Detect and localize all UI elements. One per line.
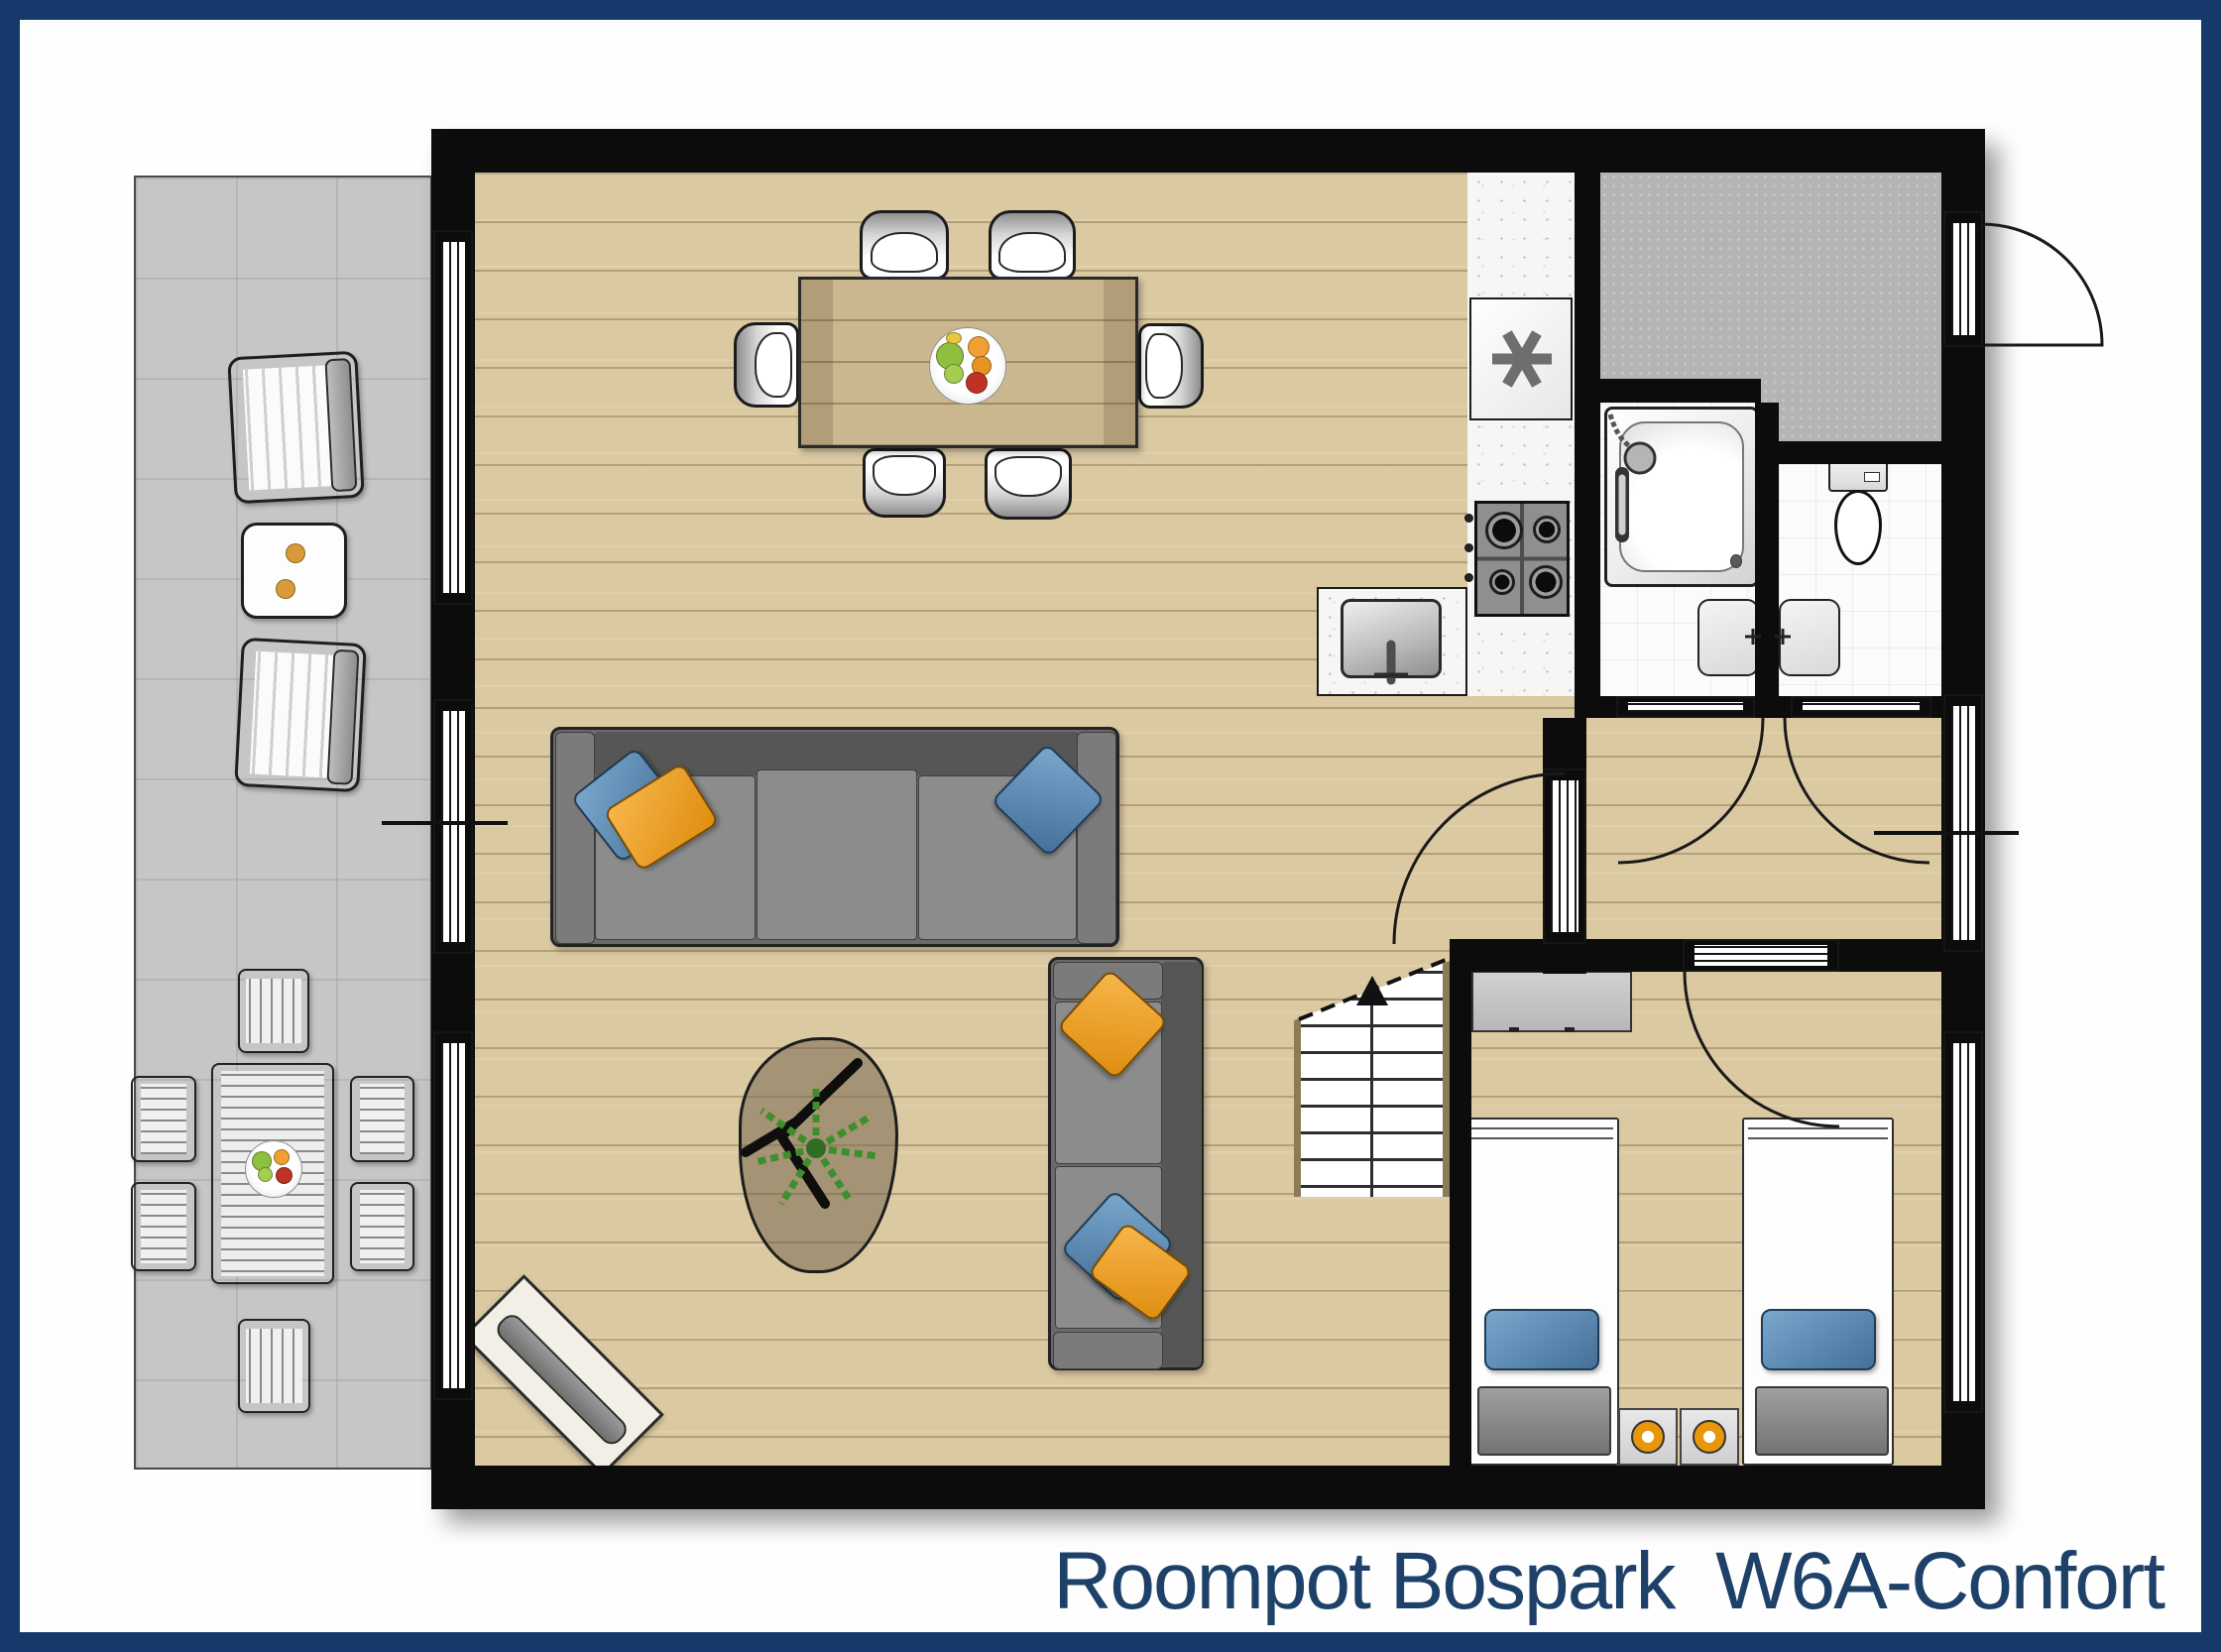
freezer-symbol [1492,333,1552,385]
shower-door-swing-arc [1618,718,1763,863]
shower-head [1625,443,1655,473]
living-hall-door-swing-arc [1394,773,1565,944]
front-door-swing-arc [1981,224,2102,345]
stairs-up-arrow [1356,976,1388,1005]
plant-center [806,1138,826,1158]
wc-door-swing-arc [1785,718,1929,863]
floorplan-page: Roompot Bospark W6A-Confort [0,0,2221,1652]
plan-caption: Roompot Bospark W6A-Confort [1053,1535,2163,1628]
bedroom-door-swing-arc [1685,972,1839,1126]
plan-symbol-overlay [0,0,2221,1652]
basin-tap [1745,629,1791,645]
